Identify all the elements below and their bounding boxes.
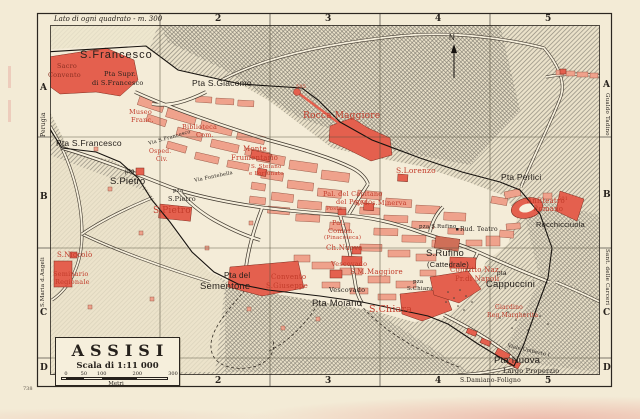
map-label: Vescovado bbox=[331, 261, 367, 268]
map-label: Pta S.Francesco bbox=[56, 139, 122, 148]
grid-label: 3 bbox=[325, 14, 331, 24]
grid-label: 3 bbox=[325, 376, 331, 386]
map-label: Gualdo Tadino bbox=[604, 93, 610, 136]
map-label: Osped. bbox=[149, 149, 171, 155]
map-label: Ch.Nuova bbox=[326, 245, 363, 252]
map-scale-text: Scala di 1:11 000 bbox=[56, 361, 179, 371]
map-label: Pta Supr. bbox=[104, 71, 136, 78]
map-label: S.Pietro bbox=[110, 177, 145, 187]
map-label: Pta Nuova bbox=[494, 356, 540, 366]
map-label: Cappuccini bbox=[486, 280, 535, 290]
scale-bar: 050100200300 Metri bbox=[61, 371, 171, 383]
map-label: Sacro bbox=[57, 63, 77, 70]
map-label: S.Giuseppe bbox=[266, 283, 308, 290]
map-label: S.Maria d.Angeli bbox=[41, 257, 47, 307]
map-label: (Pinacoteca) bbox=[324, 236, 361, 242]
grid-label: C bbox=[40, 308, 47, 318]
map-label: di S.Francesco bbox=[92, 80, 143, 87]
grid-label: A bbox=[603, 80, 610, 90]
map-label: Com. bbox=[196, 132, 214, 139]
map-label: Pal. bbox=[332, 220, 345, 227]
map-label: Monte bbox=[243, 146, 267, 153]
grid-label: B bbox=[40, 192, 48, 202]
map-label: pza bbox=[413, 280, 423, 286]
grid-label: 2 bbox=[215, 14, 221, 24]
map-label: Giardino bbox=[495, 305, 523, 311]
map-label: pta bbox=[125, 169, 135, 176]
scale-unit: Metri bbox=[61, 381, 171, 387]
map-label: S.Francesco bbox=[80, 50, 153, 61]
map-label: Pta S.Giacomo bbox=[192, 79, 252, 88]
map-label: S.Lorenzo bbox=[396, 167, 436, 175]
map-label: Rud. Teatro bbox=[460, 227, 498, 233]
map-label: Franc. bbox=[131, 117, 154, 124]
map-title: ASSISI bbox=[56, 341, 179, 360]
map-label: Pta Perlici bbox=[501, 173, 541, 182]
map-label: S. Stefano bbox=[251, 165, 281, 171]
grid-label: D bbox=[40, 363, 48, 373]
map-label: Museo bbox=[129, 109, 152, 116]
map-label: S.M. s.Minerva bbox=[354, 200, 407, 207]
grid-label: D bbox=[603, 363, 611, 373]
map-label: Sementone bbox=[200, 282, 250, 292]
map-label: Civ. bbox=[156, 157, 168, 163]
grid-label: A bbox=[40, 83, 47, 93]
grid-label: 4 bbox=[435, 376, 441, 386]
map-label: Sant. delle Carceri bbox=[604, 249, 610, 305]
map-label: Comun. bbox=[328, 228, 355, 235]
map-label: S.Rufino bbox=[426, 249, 464, 259]
map-label: Largo Properzio bbox=[503, 368, 559, 375]
map-label: S.Pietro bbox=[168, 196, 196, 203]
map-label: pta bbox=[497, 271, 507, 278]
grid-label: B bbox=[603, 190, 611, 200]
map-label: S.Chiara bbox=[407, 287, 433, 293]
grid-label: 5 bbox=[545, 376, 551, 386]
title-box: ASSISI Scala di 1:11 000 050100200300 Me… bbox=[55, 337, 180, 386]
map-label: Pal. del Capitano bbox=[323, 191, 382, 198]
map-label: S.Damiano-Foligno bbox=[460, 378, 521, 384]
assisi-map-page: Lato di ogni quadrato - m. 300 234512345… bbox=[0, 0, 640, 419]
map-label: Pta del bbox=[224, 272, 250, 280]
map-label: Regionale bbox=[55, 279, 90, 286]
map-label: S.Niccolò bbox=[57, 252, 92, 259]
map-label: 505 bbox=[296, 85, 306, 90]
map-label: Rocca Maggiore bbox=[303, 112, 380, 121]
margin-mark bbox=[8, 66, 11, 88]
map-label: Convitto Naz. bbox=[450, 267, 501, 274]
grid-label: 4 bbox=[435, 14, 441, 24]
map-label: Perugia bbox=[41, 112, 47, 137]
grid-label: 2 bbox=[215, 376, 221, 386]
map-label: Convento bbox=[48, 72, 81, 79]
map-label: Frumentario bbox=[231, 155, 278, 162]
map-label: pza bbox=[173, 189, 183, 195]
map-label: S.Chiara bbox=[369, 305, 412, 315]
map-label: S.M.Maggiore bbox=[350, 269, 403, 276]
map-label: Pta Moiano bbox=[312, 299, 362, 309]
map-label: e Fortunato bbox=[249, 172, 284, 178]
map-label: Anfiteatro bbox=[527, 198, 565, 205]
grid-label: 5 bbox=[545, 14, 551, 24]
map-label: Convento bbox=[271, 274, 306, 281]
grid-square-note: Lato di ogni quadrato - m. 300 bbox=[54, 15, 162, 23]
map-label: Vescovado bbox=[329, 287, 365, 294]
map-label: N bbox=[449, 34, 455, 42]
map-label: Romano bbox=[533, 206, 563, 213]
grid-label: C bbox=[603, 308, 610, 318]
map-label: pza S.Rufino bbox=[419, 225, 457, 231]
margin-mark bbox=[8, 100, 11, 122]
map-label: Reg.Margherita bbox=[487, 313, 538, 319]
map-label: Rocchicciuola bbox=[536, 221, 585, 229]
plate-number: 738 bbox=[23, 386, 33, 392]
map-label: S.Pietro bbox=[153, 207, 191, 216]
map-label: Seminario bbox=[53, 271, 89, 278]
map-label: Posta bbox=[326, 207, 342, 213]
